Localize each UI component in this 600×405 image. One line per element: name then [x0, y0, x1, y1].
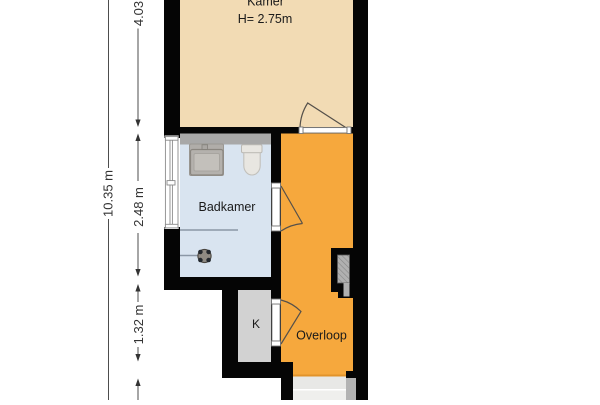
svg-text:H= 2.75m: H= 2.75m — [238, 12, 293, 26]
svg-text:Overloop: Overloop — [296, 329, 347, 343]
svg-text:Kamer: Kamer — [247, 0, 284, 9]
svg-text:1.32 m: 1.32 m — [131, 305, 146, 345]
svg-text:10.35 m: 10.35 m — [101, 170, 116, 217]
svg-text:4.03: 4.03 — [131, 1, 146, 26]
svg-text:2.48 m: 2.48 m — [131, 187, 146, 227]
svg-text:K: K — [252, 317, 260, 331]
svg-text:Badkamer: Badkamer — [199, 200, 256, 214]
